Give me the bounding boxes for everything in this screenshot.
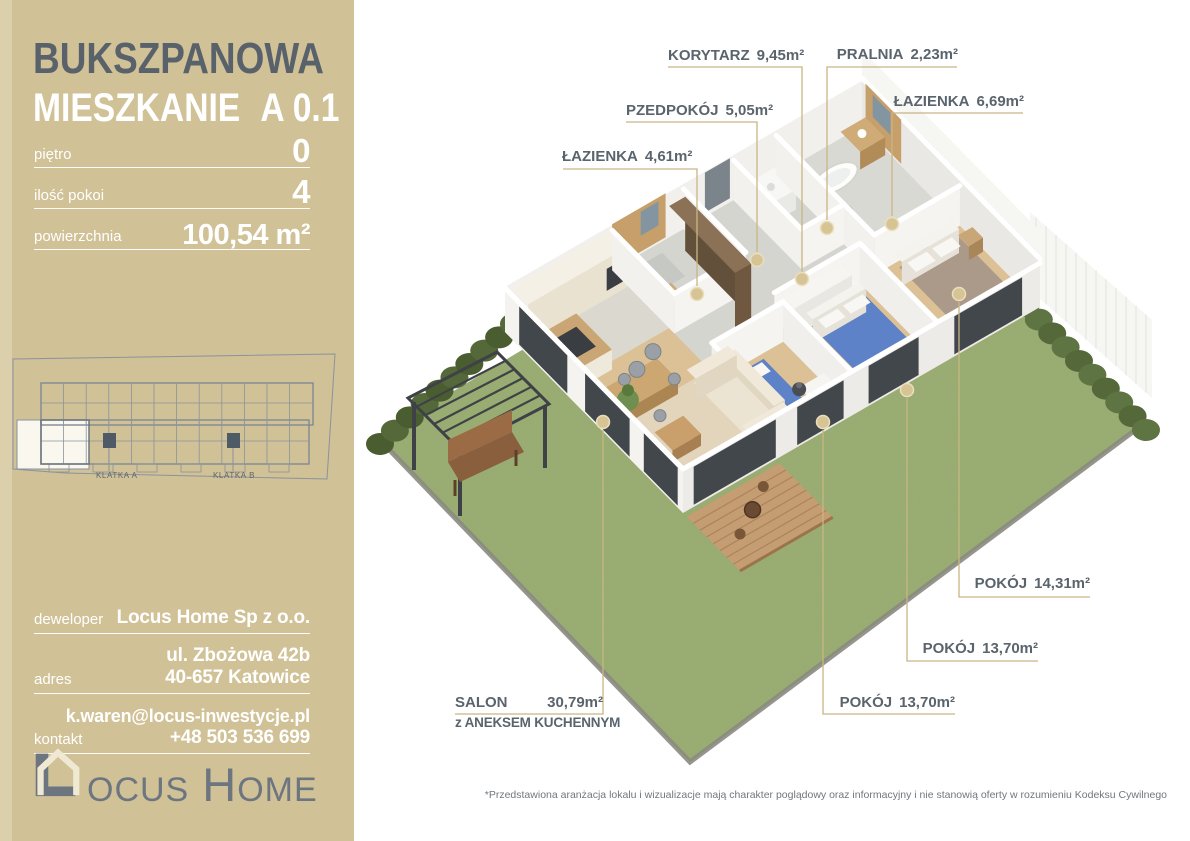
room-area: 5,05m² bbox=[726, 102, 774, 119]
label-salon: SALON 30,79m² z ANEKSEM KUCHENNYM bbox=[455, 694, 603, 730]
address-row: adres ul. Zbożowa 42b 40-657 Katowice bbox=[34, 643, 310, 694]
stat-area: powierzchnia 100,54 m² bbox=[34, 209, 310, 250]
room-area: 9,45m² bbox=[757, 47, 805, 64]
room-name: ŁAZIENKA bbox=[562, 148, 638, 165]
highlighted-apartment bbox=[17, 420, 89, 469]
stat-rooms-value: 4 bbox=[292, 173, 310, 211]
room-name: ŁAZIENKA bbox=[894, 93, 970, 110]
stat-floor-value: 0 bbox=[292, 132, 310, 170]
room-area: 13,70m² bbox=[982, 640, 1038, 657]
room-subtitle: z ANEKSEM KUCHENNYM bbox=[455, 715, 603, 730]
room-name: KORYTARZ bbox=[668, 47, 750, 64]
stat-floor-label: piętro bbox=[34, 146, 72, 163]
stat-rooms-label: ilość pokoi bbox=[34, 187, 104, 204]
developer-info: deweloper Locus Home Sp z o.o. adres ul.… bbox=[34, 605, 310, 763]
label-pokoj-1: POKÓJ 14,31m² bbox=[956, 575, 1090, 592]
room-name: SALON bbox=[455, 694, 508, 711]
stat-rooms: ilość pokoi 4 bbox=[34, 168, 310, 209]
project-title: BUKSZPANOWA bbox=[33, 34, 324, 84]
room-name: PRALNIA bbox=[837, 46, 904, 63]
logo-text-h: H bbox=[202, 766, 237, 805]
developer-row: deweloper Locus Home Sp z o.o. bbox=[34, 605, 310, 634]
logo-text-ocus: OCUS bbox=[87, 776, 189, 805]
brochure-page: BUKSZPANOWA MIESZKANIE A 0.1 piętro 0 il… bbox=[0, 0, 1190, 841]
sidebar: BUKSZPANOWA MIESZKANIE A 0.1 piętro 0 il… bbox=[0, 0, 354, 841]
label-lazienka-dolna: ŁAZIENKA 4,61m² bbox=[562, 148, 692, 165]
label-pokoj-3: POKÓJ 13,70m² bbox=[821, 694, 955, 711]
room-name: POKÓJ bbox=[975, 575, 1028, 592]
room-area: 4,61m² bbox=[645, 148, 693, 165]
room-area: 14,31m² bbox=[1034, 575, 1090, 592]
room-area: 2,23m² bbox=[910, 46, 958, 63]
address-label: adres bbox=[34, 671, 72, 688]
developer-label: deweloper bbox=[34, 611, 103, 628]
contact-email: k.waren@locus-inwestycje.pl bbox=[34, 705, 310, 727]
staircase-b-marker bbox=[227, 433, 240, 448]
staircase-a-marker bbox=[103, 433, 116, 448]
room-name: POKÓJ bbox=[840, 694, 893, 711]
room-name: PZEDPOKÓJ bbox=[626, 102, 719, 119]
legal-disclaimer: *Przedstawiona aranżacja lokalu i wizual… bbox=[485, 789, 1167, 801]
label-pokoj-2: POKÓJ 13,70m² bbox=[904, 640, 1038, 657]
unit-stats: piętro 0 ilość pokoi 4 powierzchnia 100,… bbox=[34, 127, 310, 250]
locus-home-logo: OCUS H OME bbox=[28, 742, 318, 805]
stat-area-label: powierzchnia bbox=[34, 228, 122, 245]
staircase-b-label: KLATKA B bbox=[213, 471, 255, 480]
stat-floor: piętro 0 bbox=[34, 127, 310, 168]
unit-label: MIESZKANIE bbox=[33, 86, 240, 131]
logo-text-ome: OME bbox=[237, 776, 317, 805]
room-name: POKÓJ bbox=[923, 640, 976, 657]
unit-title: MIESZKANIE A 0.1 bbox=[33, 86, 339, 131]
address-city: 40-657 Katowice bbox=[34, 667, 310, 689]
address-street: ul. Zbożowa 42b bbox=[34, 645, 310, 667]
label-przedpokoj: PZEDPOKÓJ 5,05m² bbox=[626, 102, 773, 119]
room-area: 30,79m² bbox=[547, 694, 603, 711]
label-lazienka-gorna: ŁAZIENKA 6,69m² bbox=[891, 93, 1024, 110]
room-area: 13,70m² bbox=[899, 694, 955, 711]
unit-number: A 0.1 bbox=[260, 86, 339, 131]
room-area: 6,69m² bbox=[976, 93, 1024, 110]
stat-area-value: 100,54 m² bbox=[182, 219, 310, 252]
label-pralnia: PRALNIA 2,23m² bbox=[827, 46, 958, 63]
staircase-a-label: KLATKA A bbox=[96, 471, 138, 480]
building-minimap bbox=[5, 351, 349, 491]
label-korytarz: KORYTARZ 9,45m² bbox=[668, 47, 804, 64]
logo-house-icon bbox=[28, 742, 84, 805]
